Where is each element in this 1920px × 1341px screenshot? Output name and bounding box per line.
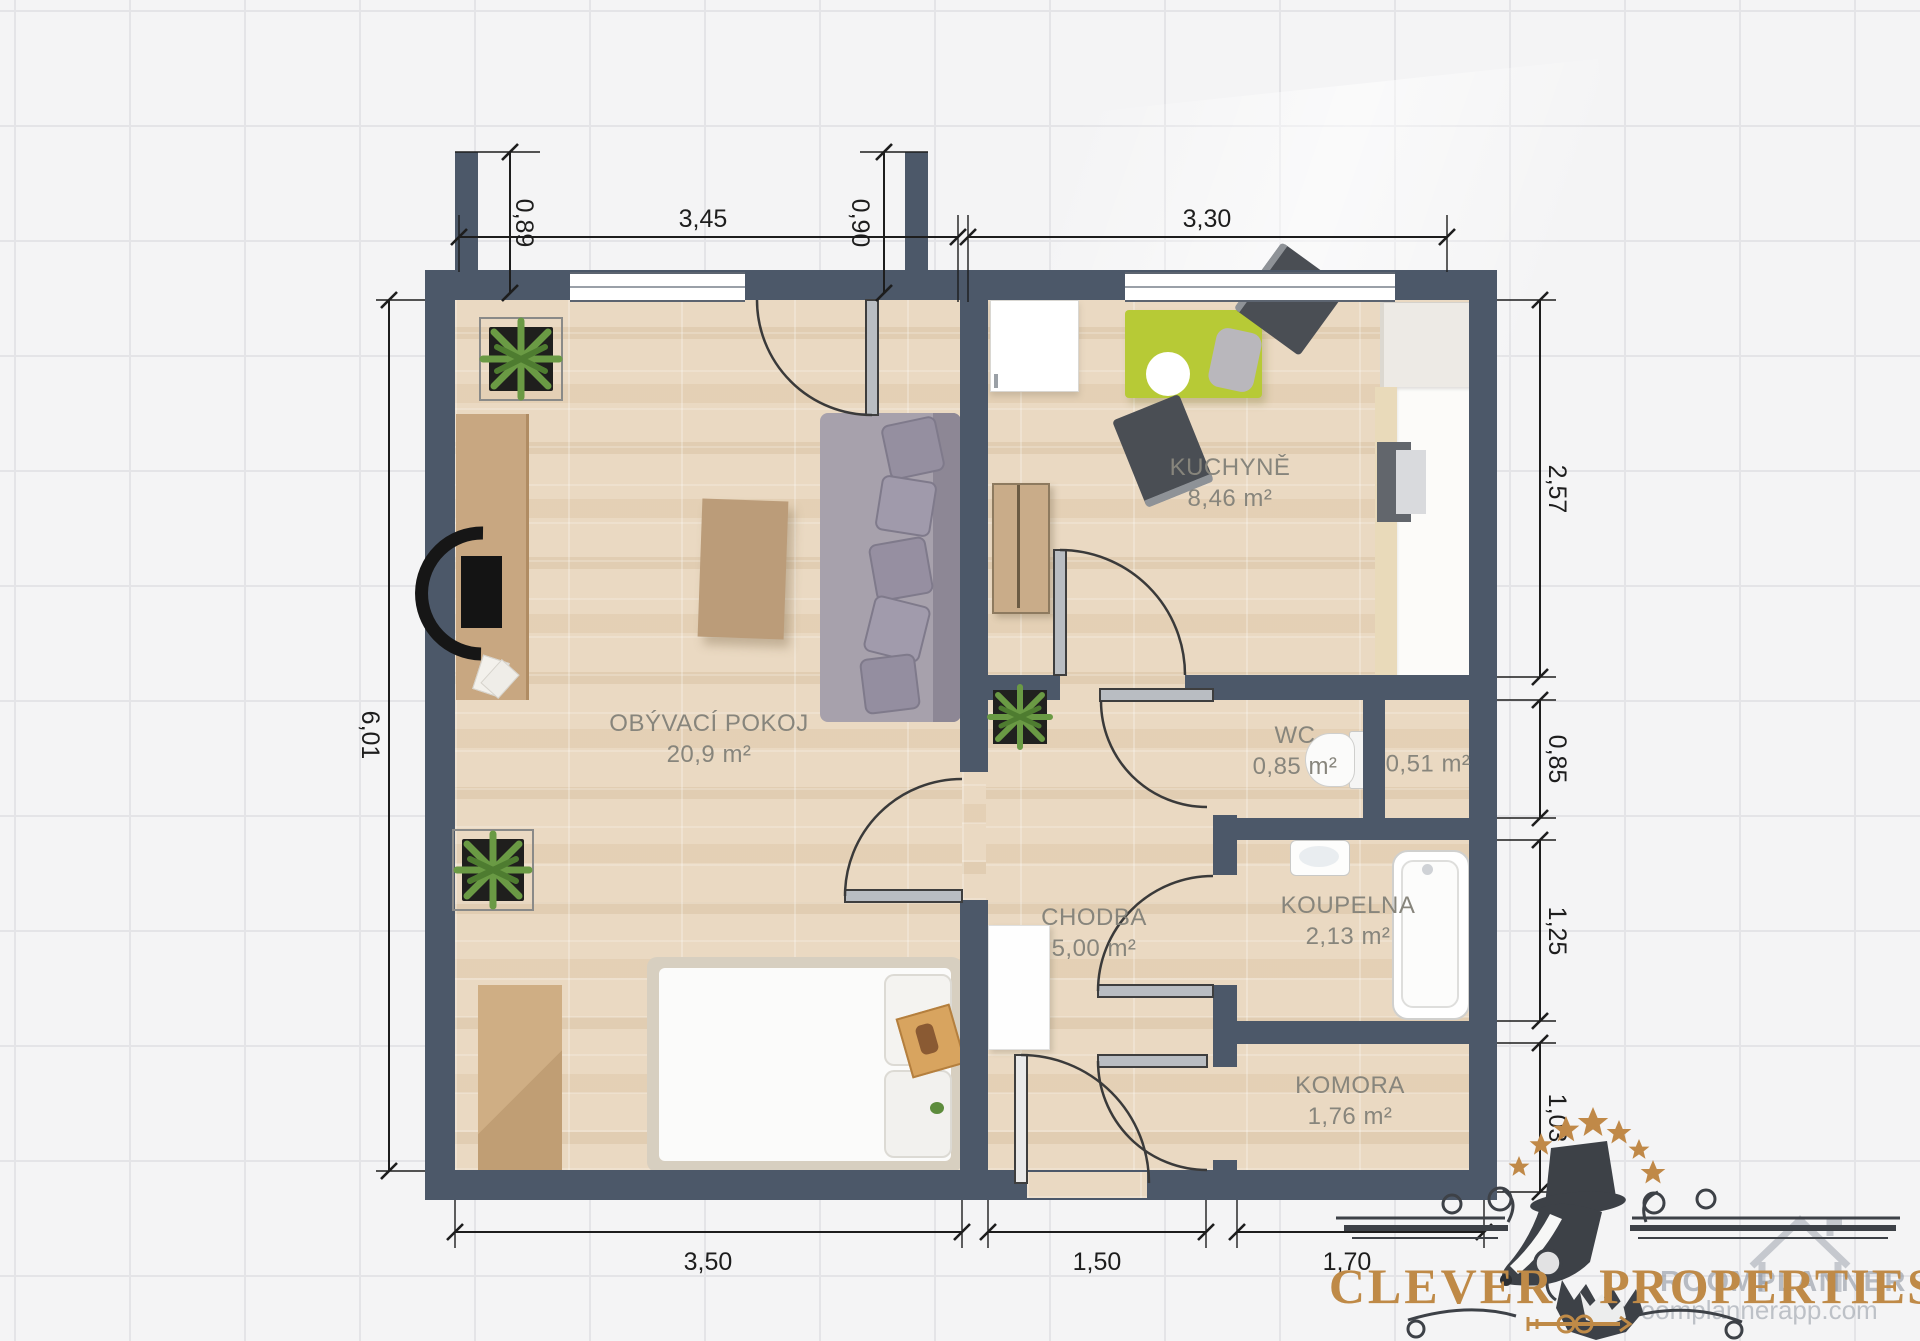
logo-text-clever: CLEVER [1329, 1258, 1555, 1314]
room-area: 20,9 m² [609, 739, 808, 770]
balcony-door-leaf [866, 300, 878, 415]
dim-right-2: 1,25 [1543, 907, 1571, 956]
room-label-bathroom: KOUPELNA 2,13 m² [1281, 890, 1416, 952]
dim-top-3: 3,30 [1183, 205, 1232, 233]
flourish-right-icon [1630, 1190, 1900, 1238]
room-label-hall: CHODBA 5,00 m² [1041, 902, 1147, 964]
plant-living-top [480, 318, 562, 400]
office-chair [422, 533, 483, 654]
dim-top-0: 0,89 [510, 199, 538, 248]
living-door-leaf [845, 890, 962, 902]
door-arcs [757, 300, 1213, 1183]
room-area: 8,46 m² [1170, 483, 1291, 514]
plant-hall [990, 687, 1050, 747]
logo-text-properties: PROPERTIES [1599, 1258, 1920, 1314]
plant-living-bottom [453, 830, 533, 910]
flourish-left-icon [1336, 1188, 1513, 1238]
room-name: CHODBA [1041, 902, 1147, 933]
room-label-closet: 0,51 m² [1386, 749, 1471, 780]
entrance-door-arc [1021, 1055, 1149, 1183]
dim-right-1: 0,85 [1543, 735, 1571, 784]
storage-door-leaf [1098, 1055, 1207, 1067]
room-area: 0,85 m² [1253, 751, 1338, 782]
room-label-living: OBÝVACÍ POKOJ 20,9 m² [609, 708, 808, 770]
kitchen-door-leaf [1054, 550, 1066, 675]
bathroom-door-leaf [1098, 985, 1213, 997]
balcony-door-arc [757, 300, 872, 415]
living-door-arc [845, 779, 962, 896]
room-label-kitchen: KUCHYNĚ 8,46 m² [1170, 452, 1291, 514]
kitchen-door-arc [1060, 550, 1185, 675]
room-name: KOMORA [1295, 1070, 1405, 1101]
dim-bottom-0: 3,50 [684, 1248, 733, 1276]
room-name: WC [1253, 720, 1338, 751]
dim-top-2: 0,90 [846, 199, 874, 248]
room-label-wc: WC 0,85 m² [1253, 720, 1338, 782]
dim-top-1: 3,45 [679, 205, 728, 233]
room-area: 5,00 m² [1041, 933, 1147, 964]
plan-overlay: 0,89 3,45 0,90 3,30 6,01 2,57 0,85 1,25 … [0, 0, 1920, 1341]
entrance-door-leaf [1015, 1055, 1027, 1183]
dim-right-0: 2,57 [1543, 465, 1571, 514]
wc-door-arc [1101, 701, 1207, 807]
dim-bottom-1: 1,50 [1073, 1248, 1122, 1276]
room-name: KOUPELNA [1281, 890, 1416, 921]
room-area: 0,51 m² [1386, 749, 1471, 780]
storage-door-arc [1098, 1061, 1207, 1170]
wc-door-leaf [1100, 689, 1213, 701]
floorplan-canvas: 0,89 3,45 0,90 3,30 6,01 2,57 0,85 1,25 … [0, 0, 1920, 1341]
room-label-storage: KOMORA 1,76 m² [1295, 1070, 1405, 1132]
room-name: OBÝVACÍ POKOJ [609, 708, 808, 739]
dim-left-0: 6,01 [356, 711, 384, 760]
room-name: KUCHYNĚ [1170, 452, 1291, 483]
room-area: 1,76 m² [1295, 1101, 1405, 1132]
room-area: 2,13 m² [1281, 921, 1416, 952]
